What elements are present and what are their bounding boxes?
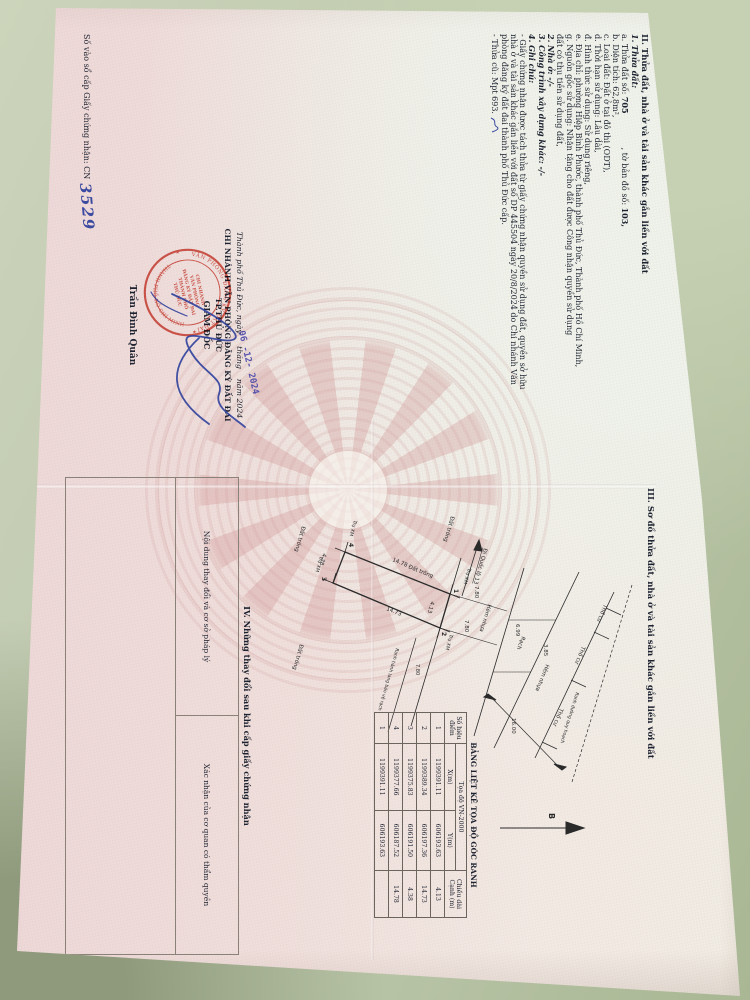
svg-text:4: 4 (347, 543, 354, 547)
director-signature (146, 286, 258, 434)
vacant-label-2: Đất trống (407, 563, 434, 579)
vacant-label-3: Đất trống (293, 525, 307, 552)
residential-label-3: Thổ cư (551, 706, 565, 727)
residential-label-2: Thổ cư (573, 644, 587, 665)
vacant-label-4: Đất trống (291, 643, 305, 670)
col-coord-header: Tọa độ VN-2000 (456, 744, 467, 871)
table-row: 11199391.11606193.63 (375, 713, 389, 918)
document-rotated-content: II. Thửa đất, nhà ở và tài sản khác gắn … (36, 20, 656, 960)
coordinate-table-title: BẢNG LIỆT KÊ TỌA ĐỘ GÓC RANH (469, 712, 478, 918)
svg-text:3: 3 (320, 577, 327, 581)
section-4-table: Nội dung thay đổi và cơ sở pháp lý Xác n… (65, 477, 239, 955)
changes-content-header: Nội dung thay đổi và cơ sở pháp lý (176, 478, 238, 716)
svg-text:2: 2 (440, 632, 447, 636)
col-x-header: X(m) (445, 744, 456, 811)
registry-number-handwritten: 3529 (80, 183, 94, 231)
photo-background: II. Thửa đất, nhà ở và tài sản khác gắn … (0, 0, 750, 1000)
registry-number-line: Số vào sổ cấp Giấy chứng nhận: CN 3529 (82, 34, 92, 231)
corridor-width: 7.80 (414, 664, 420, 675)
table-row: 31199375.83606191.504.38 (403, 713, 417, 918)
section-4-changes: IV. Những thay đổi sau khi cấp giấy chứn… (65, 477, 252, 955)
col-y-header: Y(m) (445, 810, 456, 870)
vacant-label-1: Đất trống (442, 515, 456, 542)
post-label-4: Trụ XM (348, 518, 359, 536)
authority-confirm-header: Xác nhận của cơ quan có thẩm quyền (176, 716, 238, 954)
coordinate-table: BẢNG LIỆT KÊ TỌA ĐỘ GÓC RANH Số hiệu điể… (374, 712, 478, 918)
certificate-paper: II. Thửa đất, nhà ở và tài sản khác gắn … (0, 0, 750, 1000)
frontage-value: 16.00 (510, 718, 516, 734)
alley-width-1: 7.80 (473, 586, 479, 599)
highway-label: Đi Quốc lộ 13 (472, 547, 489, 585)
table-row: 41199377.66606187.5214.78 (389, 713, 403, 918)
section-4-title: IV. Những thay đổi sau khi cấp giấy chứn… (242, 477, 252, 955)
canal-width-2: 3.85 (542, 644, 548, 657)
side-dim-12: 4.13 (426, 600, 435, 614)
north-label: B (547, 813, 556, 819)
residential-label-1: Thổ cư (595, 602, 609, 623)
parcel-outline (333, 552, 450, 628)
alley-label-2: Hẻm nhựa (533, 663, 550, 692)
registry-label: Số vào sổ cấp Giấy chứng nhận: CN (82, 34, 91, 179)
alley-label-1: Hẻm nhựa (478, 603, 493, 632)
col-point-header: Số hiệu điểm (445, 713, 467, 744)
signer-name: Trần Đình Quân (127, 242, 137, 408)
alley-width-2: 7.80 (463, 620, 469, 633)
table-row: 21199389.34606197.3614.73 (417, 713, 431, 918)
svg-text:1: 1 (452, 589, 459, 593)
post-label-1: Trụ XM (462, 566, 473, 584)
canal-width-1: 6.99 (514, 624, 520, 637)
north-arrow-icon: B (500, 813, 584, 834)
changes-empty-body (66, 478, 175, 954)
col-length-header: Chiều dàiCạnh (m) (445, 871, 467, 918)
canal-label: Rạch (515, 635, 526, 650)
side-dim-41: 14.78 (391, 557, 408, 569)
table-row: 11199391.11606193.634.13 (431, 713, 445, 918)
planned-road-label: Ranh đường quy hoạch (559, 691, 581, 744)
frontage-dimension (484, 694, 566, 770)
stamp-star-icon: ★ (174, 250, 181, 256)
side-dim-23: 14.73 (385, 606, 402, 618)
